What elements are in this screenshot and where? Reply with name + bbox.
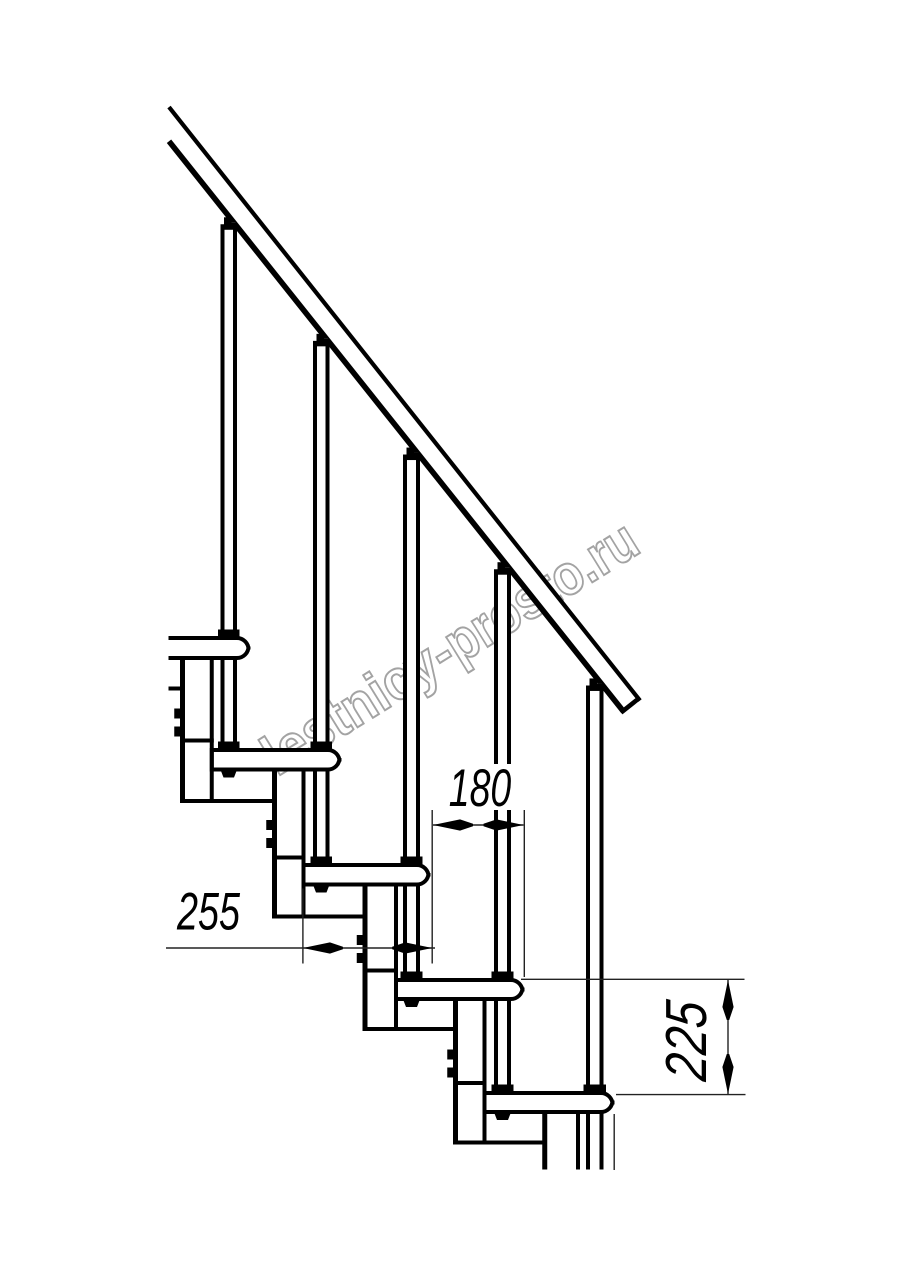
svg-text:255: 255 xyxy=(176,883,240,942)
svg-text:180: 180 xyxy=(449,759,512,818)
svg-text:225: 225 xyxy=(654,997,719,1084)
